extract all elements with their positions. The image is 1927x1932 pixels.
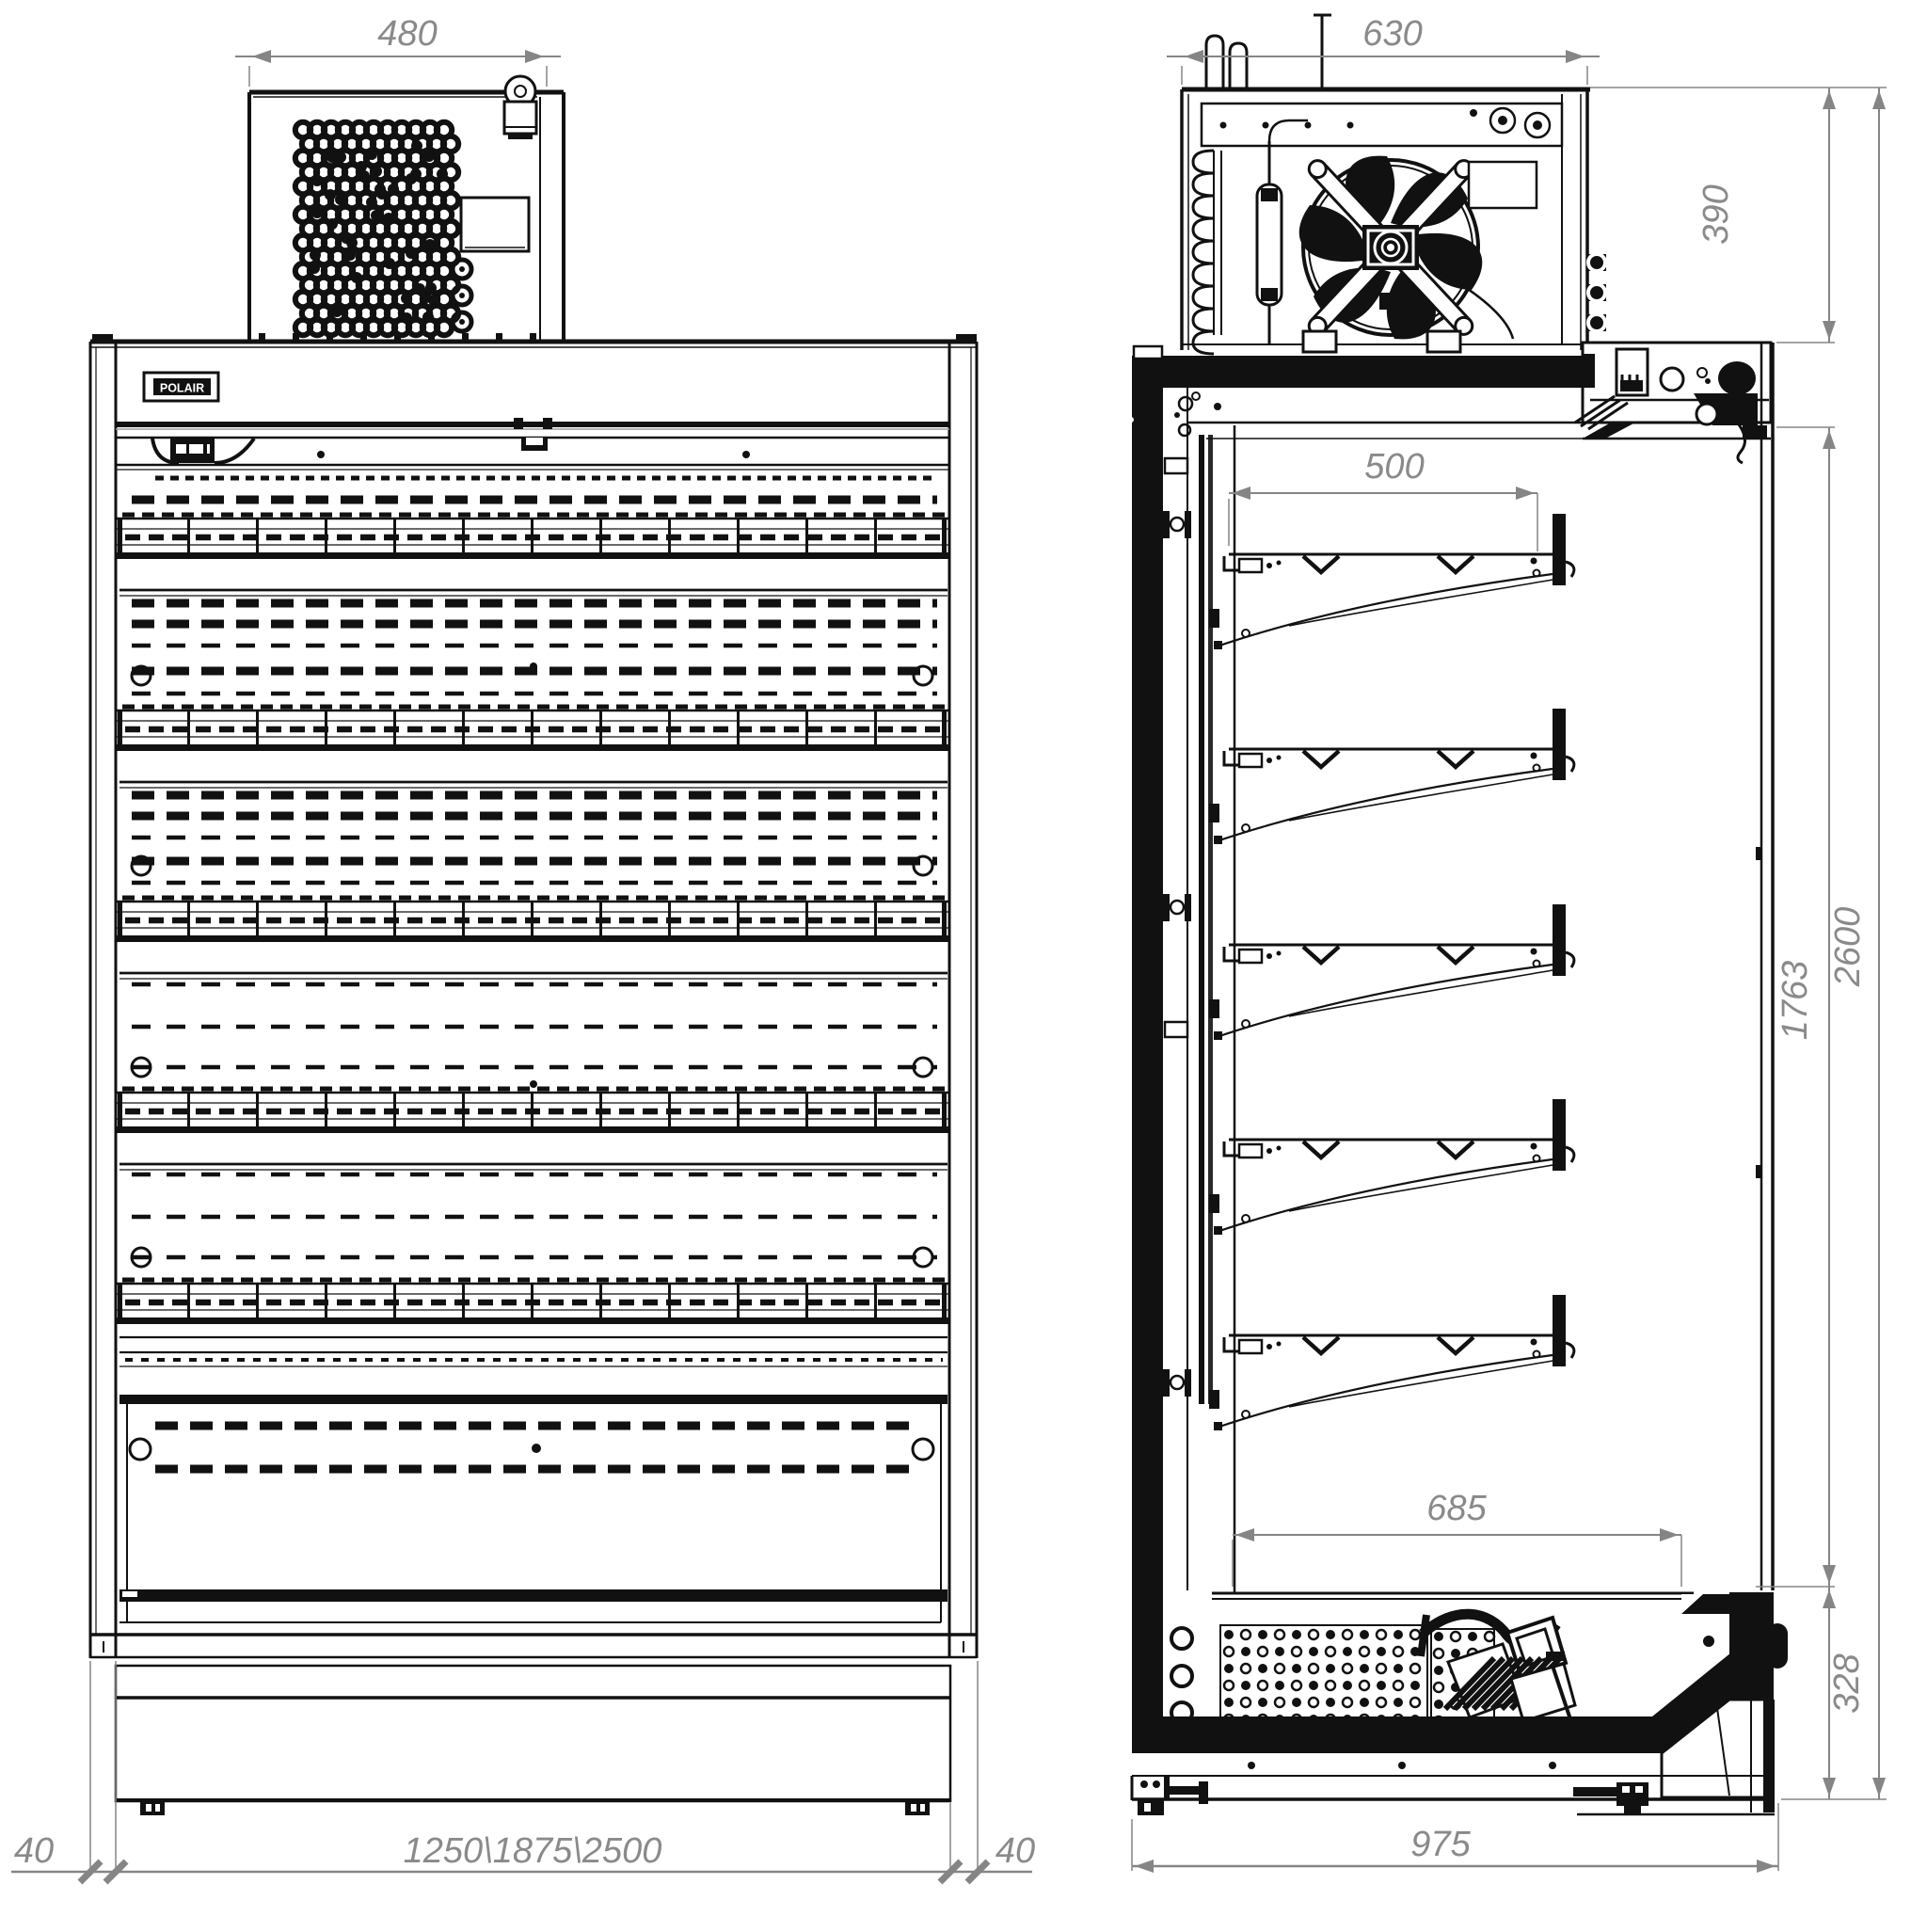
svg-text:328: 328	[1827, 1653, 1867, 1713]
svg-text:40: 40	[14, 1831, 54, 1871]
svg-text:630: 630	[1362, 14, 1422, 54]
svg-text:2600: 2600	[1828, 907, 1868, 988]
svg-text:40: 40	[995, 1831, 1035, 1871]
svg-text:685: 685	[1426, 1489, 1487, 1528]
svg-text:975: 975	[1410, 1825, 1471, 1864]
svg-text:500: 500	[1364, 447, 1424, 487]
svg-text:1250\1875\2500: 1250\1875\2500	[404, 1831, 662, 1871]
svg-text:390: 390	[1696, 184, 1736, 244]
svg-text:480: 480	[377, 14, 437, 54]
svg-text:1763: 1763	[1776, 961, 1815, 1041]
svg-text:POLAIR: POLAIR	[160, 382, 204, 395]
